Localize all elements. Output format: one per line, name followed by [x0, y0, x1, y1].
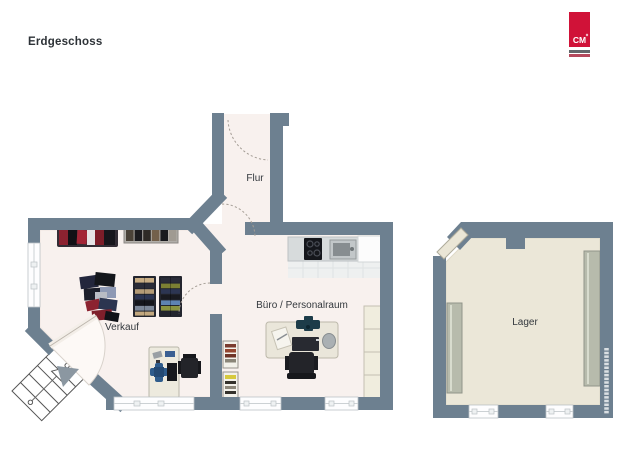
folded-clothes-rack-1: [133, 276, 156, 317]
lager-shelf-right: [584, 251, 600, 386]
room-label-verkauf: Verkauf: [105, 322, 139, 333]
buero-desk: [266, 316, 338, 358]
lager-shelf-left: [447, 303, 462, 393]
window-bottom-2: [240, 397, 281, 410]
faucet: [350, 247, 354, 251]
floorplan-drawing: Flur Verkauf Büro / Personalraum Lager: [0, 0, 626, 470]
floorplan-page: Erdgeschoss CM: [0, 0, 626, 470]
window-lager-1: [469, 405, 498, 418]
kitchen-area: [288, 236, 382, 278]
folded-clothes-rack-2: [159, 276, 182, 317]
window-bottom-1: [114, 397, 194, 410]
window-bottom-3: [325, 397, 358, 410]
cooktop: [304, 238, 322, 260]
window-lager-2: [546, 405, 573, 418]
room-label-buero: Büro / Personalraum: [256, 300, 348, 311]
kitchen-cabinet: [358, 236, 382, 262]
lager-pillar: [506, 236, 525, 249]
monitor: [167, 363, 177, 381]
tall-cabinet: [364, 306, 381, 400]
room-label-flur: Flur: [246, 173, 264, 184]
room-label-lager: Lager: [512, 317, 538, 328]
keyboard: [292, 337, 319, 351]
window-left-wall: [28, 243, 40, 307]
desk-object: [323, 334, 336, 349]
verkauf-counter-desk: [149, 347, 179, 398]
clothing-rack-top-left: [57, 228, 118, 247]
buero-office-chair: [285, 352, 318, 379]
